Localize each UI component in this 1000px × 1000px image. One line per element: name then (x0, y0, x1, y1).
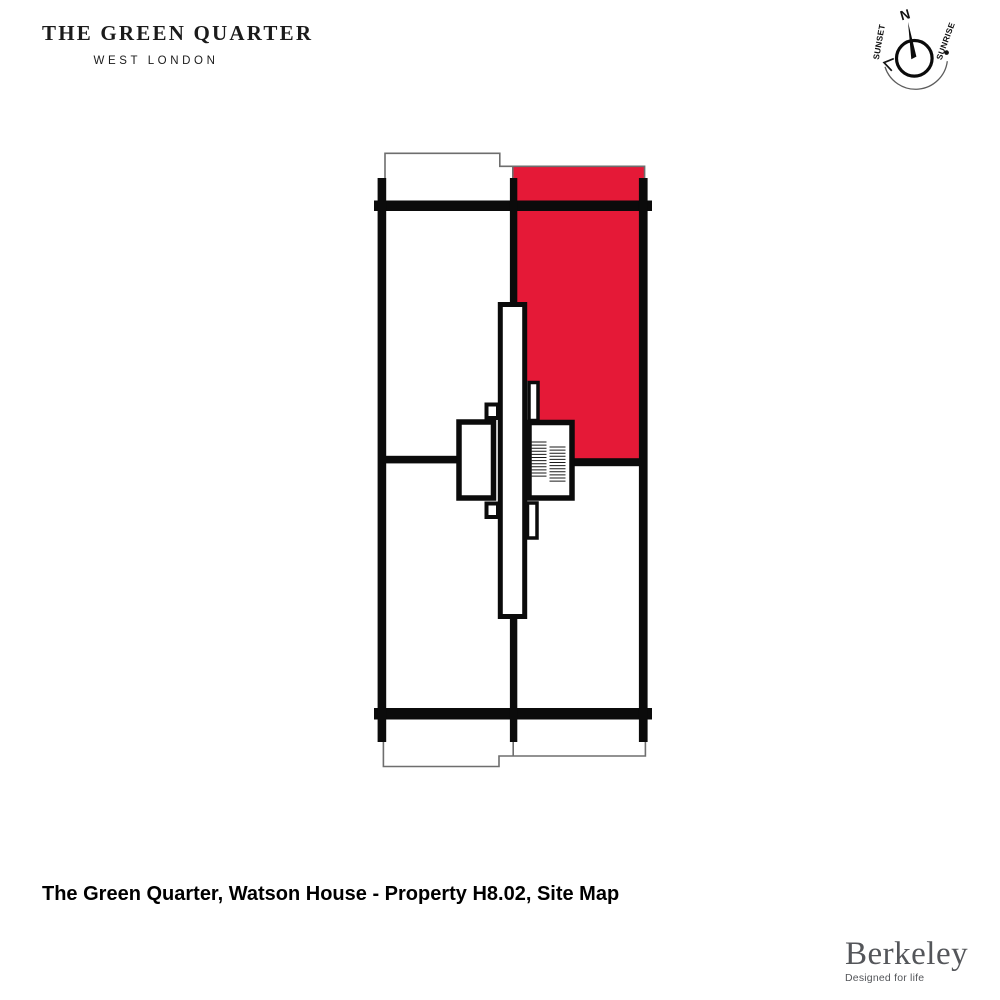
sunrise-dot (944, 50, 949, 55)
north-label: N (898, 6, 912, 23)
core-room-left (459, 422, 494, 498)
wall-middle-upper (510, 178, 517, 306)
core-square-lower (487, 504, 499, 518)
site-plan-canvas: N SUNSET SUNRISE (0, 0, 1000, 1000)
map-caption: The Green Quarter, Watson House - Proper… (42, 879, 619, 909)
compass: N SUNSET SUNRISE (871, 6, 957, 89)
wall-divider-right (568, 458, 641, 466)
site-map-page: THE GREEN QUARTER WEST LONDON (0, 0, 1000, 1000)
sunrise-label: SUNRISE (934, 21, 957, 61)
sunset-label: SUNSET (871, 23, 887, 61)
compass-circle (897, 41, 933, 77)
lift-shaft (500, 305, 524, 617)
berkeley-logo: Berkeley Designed for life (845, 938, 968, 984)
core-duct-upper (529, 383, 538, 421)
berkeley-wordmark: Berkeley (845, 938, 968, 971)
core-square-upper (487, 405, 499, 419)
wall-middle-lower (510, 617, 517, 742)
berkeley-tagline: Designed for life (845, 972, 968, 984)
core-duct-lower (528, 503, 538, 538)
wall-divider-left (382, 456, 459, 464)
